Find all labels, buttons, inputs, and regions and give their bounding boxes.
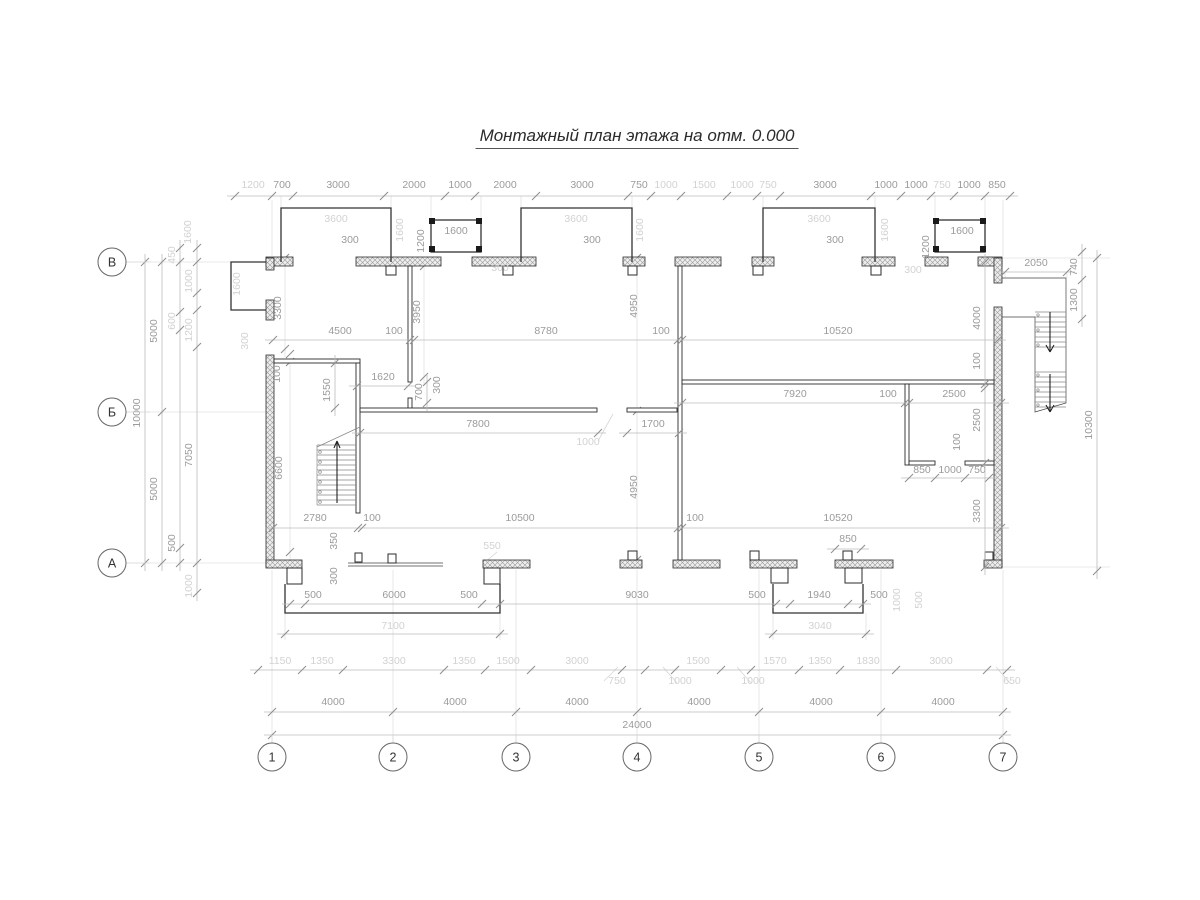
dim-left-5000: 50005000	[148, 254, 166, 571]
dim-label: 1500	[692, 179, 716, 191]
porches	[285, 568, 863, 613]
dim-label: 2000	[493, 179, 517, 191]
dim-label: 9030	[625, 589, 649, 601]
dim-label: 4000	[565, 696, 589, 708]
dim-label: 1500	[686, 655, 710, 667]
dim-label: 1000	[741, 675, 765, 687]
stair-down-arrow	[1046, 374, 1054, 412]
dim-label: 1000	[730, 179, 754, 191]
dim-label: 3300	[971, 499, 983, 523]
dim-label: 100	[971, 352, 983, 370]
dim-label: 3000	[326, 179, 350, 191]
grid-bubble-label: А	[108, 557, 117, 571]
dim-label: 2780	[303, 512, 327, 524]
dim-label: 1000	[874, 179, 898, 191]
dim-label: 4950	[628, 475, 640, 499]
dim-label: 500	[460, 589, 478, 601]
dim-label: 1600	[231, 272, 243, 296]
leader-lines	[484, 414, 1010, 683]
dim-label: 8780	[534, 325, 558, 337]
dim-label: 1000	[668, 675, 692, 687]
dim-label: 10000	[131, 398, 143, 427]
dim-850-bottom: 850	[827, 533, 869, 553]
dim-secondary-row: 1150135033001350150030007501000150010001…	[250, 655, 1021, 687]
dim-mid-right: 79201002500	[674, 388, 1009, 407]
dim-label: 1300	[1068, 288, 1080, 312]
dim-label: 300	[904, 264, 922, 276]
dim-7100: 7100	[277, 620, 508, 638]
dim-label: 750	[759, 179, 777, 191]
dim-label: 500	[166, 534, 178, 552]
dim-label: 1150	[269, 655, 292, 667]
dim-label: 10300	[1083, 410, 1095, 439]
dim-label: 1000	[448, 179, 472, 191]
dim-label: 100	[363, 512, 381, 524]
dim-label: 1600	[950, 225, 974, 237]
dim-label: 3000	[565, 655, 589, 667]
footings	[287, 568, 862, 584]
grid-bubble-label: 1	[269, 751, 276, 765]
dim-label: 4000	[687, 696, 711, 708]
dim-label: 1200	[183, 318, 195, 342]
grid-axis-column: 3	[502, 735, 530, 771]
dim-label: 1000	[576, 436, 600, 448]
dim-label: 1600	[182, 220, 194, 244]
dim-label: 1600	[879, 218, 891, 242]
dim-label: 650	[1003, 675, 1021, 687]
dim-label: 4000	[321, 696, 345, 708]
dim-label: 700	[273, 179, 291, 191]
grid-axis-column: 4	[623, 735, 651, 771]
dim-label: 300	[583, 234, 601, 246]
dim-label: 1940	[807, 589, 831, 601]
grid-axis-column: 5	[745, 735, 773, 771]
dim-label: 1700	[641, 418, 665, 430]
dim-wc: 8501000750	[901, 464, 997, 482]
dim-1700: 1700	[619, 418, 687, 437]
dim-label: 6600	[273, 456, 285, 480]
dim-right-10300: 10300	[1083, 250, 1101, 579]
dim-label: 4000	[443, 696, 467, 708]
grid-bubble-label: Б	[108, 406, 116, 420]
dim-label: 1200	[415, 229, 427, 253]
dim-label: 1000	[891, 588, 903, 612]
column-stubs	[355, 266, 993, 563]
dim-label: 1000	[938, 464, 962, 476]
dim-label: 750	[968, 464, 986, 476]
dim-label: 850	[839, 533, 857, 545]
dim-label: 350	[328, 532, 340, 550]
dim-label: 300	[239, 332, 251, 350]
dim-label: 500	[913, 591, 925, 609]
grid-axis-column: 6	[867, 735, 895, 771]
dim-right-740: 7401300	[1068, 244, 1086, 327]
dim-label: 5000	[148, 319, 160, 343]
dim-label: 4500	[328, 325, 352, 337]
dim-24000: 24000	[264, 719, 1011, 739]
dim-right-inner: 400010025003300	[971, 254, 989, 575]
dim-label: 750	[630, 179, 648, 191]
dim-1550: 1550	[321, 355, 339, 416]
dim-label: 500	[870, 589, 888, 601]
dim-left-b: 1000120070501000	[183, 240, 201, 601]
dim-label: 600	[166, 312, 178, 330]
dim-label: 100	[652, 325, 670, 337]
dim-label: 1620	[371, 371, 395, 383]
dim-label: 1000	[183, 574, 195, 598]
dim-3040: 3040	[765, 620, 874, 638]
dim-label: 24000	[622, 719, 651, 731]
dim-label: 4000	[971, 306, 983, 330]
dim-label: 2500	[942, 388, 966, 400]
floor-plan-svg: 1200700300020001000200030007501000150010…	[0, 0, 1200, 900]
stairs-internal	[317, 427, 360, 505]
dim-label: 700	[413, 383, 425, 401]
dim-label: 3040	[808, 620, 832, 632]
dim-label: 5000	[148, 477, 160, 501]
dim-label: 1350	[808, 655, 832, 667]
dim-label: 1350	[310, 655, 334, 667]
dim-label: 2500	[971, 408, 983, 432]
dim-label: 10520	[823, 325, 852, 337]
dim-label: 300	[826, 234, 844, 246]
dim-label: 3000	[813, 179, 837, 191]
dim-label: 850	[988, 179, 1006, 191]
dim-label: 3600	[807, 213, 831, 225]
dim-label: 3300	[382, 655, 406, 667]
dim-label: 450	[166, 246, 178, 264]
grid-axis-column: 2	[379, 735, 407, 771]
dim-label: 10520	[823, 512, 852, 524]
grid-axis-row: В	[98, 248, 150, 276]
dim-label: 300	[491, 262, 509, 274]
grid-axis-column: 7	[989, 735, 1017, 771]
dim-label: 4000	[809, 696, 833, 708]
dim-label: 1200	[241, 179, 265, 191]
grid-axis-column: 1	[258, 735, 286, 771]
dim-label: 3950	[411, 300, 423, 324]
dim-label: 300	[431, 376, 443, 394]
dim-label: 550	[483, 540, 501, 552]
dim-label: 6000	[382, 589, 406, 601]
dim-label: 100	[879, 388, 897, 400]
dim-left-10000: 10000	[131, 254, 149, 571]
dim-label: 300	[328, 567, 340, 585]
dim-label: 1550	[321, 378, 333, 402]
dim-label: 7050	[183, 443, 195, 467]
dim-label: 4950	[628, 294, 640, 318]
dim-label: 300	[341, 234, 359, 246]
dim-label: 1600	[394, 218, 406, 242]
dim-label: 750	[933, 179, 951, 191]
dim-label: 750	[608, 675, 626, 687]
dim-label: 7920	[783, 388, 807, 400]
dim-porches: 500600050090305001940500	[282, 589, 888, 608]
dim-label: 740	[1068, 258, 1080, 276]
dim-label: 1000	[183, 269, 195, 293]
grid-bubble-label: 7	[1000, 751, 1007, 765]
dim-label: 100	[385, 325, 403, 337]
grid-bubble-label: 2	[390, 751, 397, 765]
dim-label: 1600	[444, 225, 468, 237]
grid-bubble-label: 4	[634, 751, 641, 765]
drawing-sheet: Монтажный план этажа на отм. 0.000	[0, 0, 1200, 900]
dim-label: 1570	[763, 655, 787, 667]
dim-label: 1600	[634, 218, 646, 242]
dim-label: 3600	[324, 213, 348, 225]
dim-label: 3000	[929, 655, 953, 667]
dim-label: 7100	[381, 620, 405, 632]
dim-label: 500	[748, 589, 766, 601]
dim-label: 100	[271, 365, 283, 383]
dim-label: 2000	[402, 179, 426, 191]
grid-bubble-label: В	[108, 256, 116, 270]
dim-label: 1350	[452, 655, 476, 667]
stairs-external	[1002, 278, 1066, 412]
dim-label: 1500	[496, 655, 520, 667]
dim-label: 1200	[920, 235, 932, 259]
dim-label: 850	[913, 464, 931, 476]
dim-label: 1000	[957, 179, 981, 191]
dim-label: 4000	[931, 696, 955, 708]
dim-label: 2050	[1024, 257, 1048, 269]
dim-4000-row: 400040004000400040004000	[264, 696, 1011, 716]
dim-top-main: 1200700300020001000200030007501000150010…	[227, 179, 1018, 200]
dim-2050: 2050	[997, 257, 1075, 276]
dim-label: 500	[304, 589, 322, 601]
dim-left-a: 450600500	[166, 240, 184, 571]
grid-bubble-label: 5	[756, 751, 763, 765]
dim-label: 100	[686, 512, 704, 524]
dim-label: 3000	[570, 179, 594, 191]
dim-label: 100	[951, 433, 963, 451]
dim-label: 1000	[904, 179, 928, 191]
dim-label: 3300	[272, 296, 284, 320]
dim-label: 1000	[654, 179, 678, 191]
dim-7800: 7800	[352, 418, 606, 437]
grid-bubble-label: 3	[513, 751, 520, 765]
grid-bubble-label: 6	[878, 751, 885, 765]
grid-axis-row: А	[98, 549, 150, 577]
dim-mid-left: 4500100878010010520	[265, 325, 1006, 344]
dim-label: 3600	[564, 213, 588, 225]
dim-label: 10500	[505, 512, 534, 524]
dim-label: 7800	[466, 418, 490, 430]
dim-label: 1830	[856, 655, 880, 667]
